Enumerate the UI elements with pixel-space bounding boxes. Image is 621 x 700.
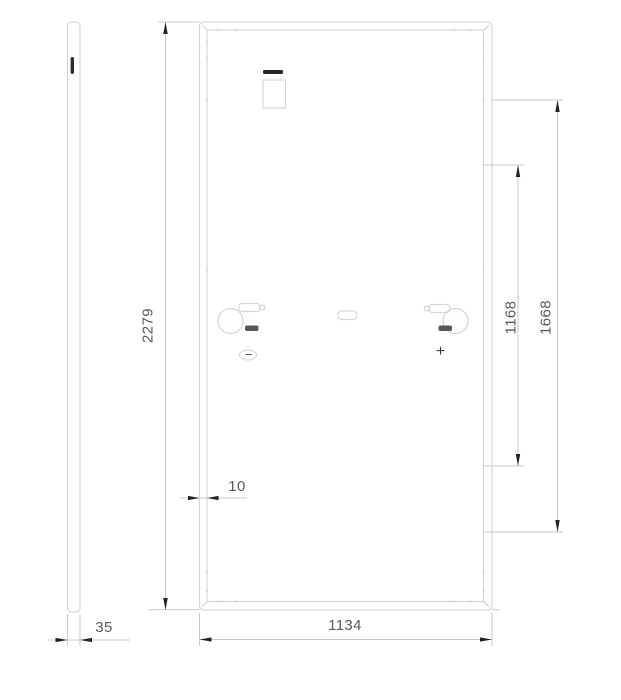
side-profile-view [68, 22, 81, 612]
junction-box-outline [263, 80, 286, 108]
frame-hole-marks [206, 29, 484, 602]
polarity-positive-label: + [432, 344, 449, 360]
dim-width-label: 1134 [313, 617, 377, 634]
junction-box-cap [263, 70, 283, 74]
junction-box [263, 70, 286, 108]
rear-view-frame [200, 22, 493, 610]
dim-frame-label: 10 [219, 478, 255, 495]
dim-span-outer-label: 1668 [538, 296, 555, 340]
polarity-negative-label: − [240, 347, 257, 363]
connector-tip-left [245, 326, 259, 332]
nameplate-capsule [338, 311, 357, 320]
technical-drawing-canvas: 2279 1168 1668 1134 35 10 − + [0, 0, 621, 700]
dim-thickness-label: 35 [86, 619, 122, 636]
drawing-linework [0, 0, 621, 700]
connector-plug-left [239, 304, 260, 312]
dim-span-inner-label: 1168 [503, 296, 520, 340]
side-junction-mark [71, 57, 74, 74]
dim-height-label: 2279 [140, 304, 157, 348]
cable-coil-left [218, 309, 243, 334]
connector-tip-right [439, 326, 453, 332]
cable-positive [425, 305, 469, 334]
dim-height-group [148, 22, 500, 610]
dim-frame-group [180, 496, 247, 500]
